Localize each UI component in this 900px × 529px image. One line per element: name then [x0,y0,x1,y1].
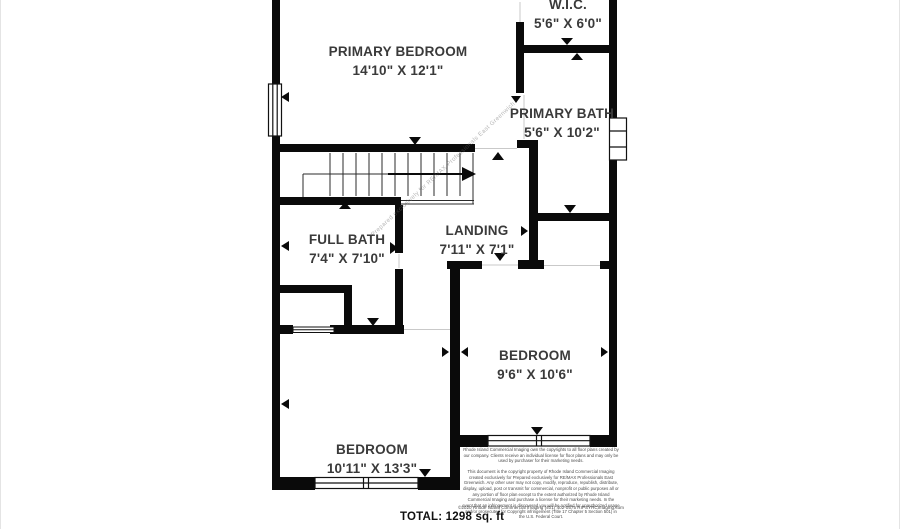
door-marker-icon [531,427,543,435]
room-label-primary-bath: PRIMARY BATH 5'6" X 10'2" [510,104,614,142]
room-name: BEDROOM [327,440,417,459]
room-name: W.I.C. [534,0,602,14]
room-dims: 7'11" X 7'1" [440,240,515,259]
copyright-license-note: Rhode Island Commercial Imaging own the … [462,447,620,464]
door-marker-icon [571,53,583,60]
door-marker-icon [442,347,449,357]
room-name: BEDROOM [497,346,573,365]
window-icon [269,84,282,136]
room-label-bedroom-right: BEDROOM 9'6" X 10'6" [497,346,573,384]
door-marker-icon [419,469,431,477]
door-marker-icon [281,92,289,102]
room-dims: 5'6" X 10'2" [510,123,614,142]
room-label-wic: W.I.C. 5'6" X 6'0" [534,0,602,33]
door-marker-icon [281,399,289,409]
closet-door-icon [293,327,334,333]
door-marker-icon [601,347,608,357]
room-label-bedroom-left: BEDROOM 10'11" X 13'3" [327,440,417,478]
room-label-primary-bedroom: PRIMARY BEDROOM 14'10" X 12'1" [329,42,468,80]
door-marker-icon [561,38,573,45]
door-marker-icon [564,205,576,213]
window-icon [488,436,590,447]
room-name: PRIMARY BEDROOM [329,42,468,61]
window-icon [315,478,418,489]
floor-plan-canvas: PRIMARY BEDROOM 14'10" X 12'1" W.I.C. 5'… [0,0,900,529]
room-dims: 7'4" X 7'10" [309,249,385,268]
total-area-label: TOTAL: 1298 sq. ft [400,511,504,523]
room-name: LANDING [440,221,515,240]
copyright-footer-line: ©2020 Rhode Island Commercial Imaging (4… [455,505,627,510]
room-dims: 9'6" X 10'6" [497,365,573,384]
room-label-landing: LANDING 7'11" X 7'1" [440,221,515,259]
door-marker-icon [492,152,504,160]
door-marker-icon [367,318,379,326]
door-marker-icon [409,137,421,145]
room-dims: 5'6" X 6'0" [534,14,602,33]
door-marker-icon [461,347,468,357]
room-dims: 14'10" X 12'1" [329,61,468,80]
door-marker-icon [521,226,528,236]
door-marker-icon [281,241,289,251]
room-dims: 10'11" X 13'3" [327,459,417,478]
room-name: PRIMARY BATH [510,104,614,123]
